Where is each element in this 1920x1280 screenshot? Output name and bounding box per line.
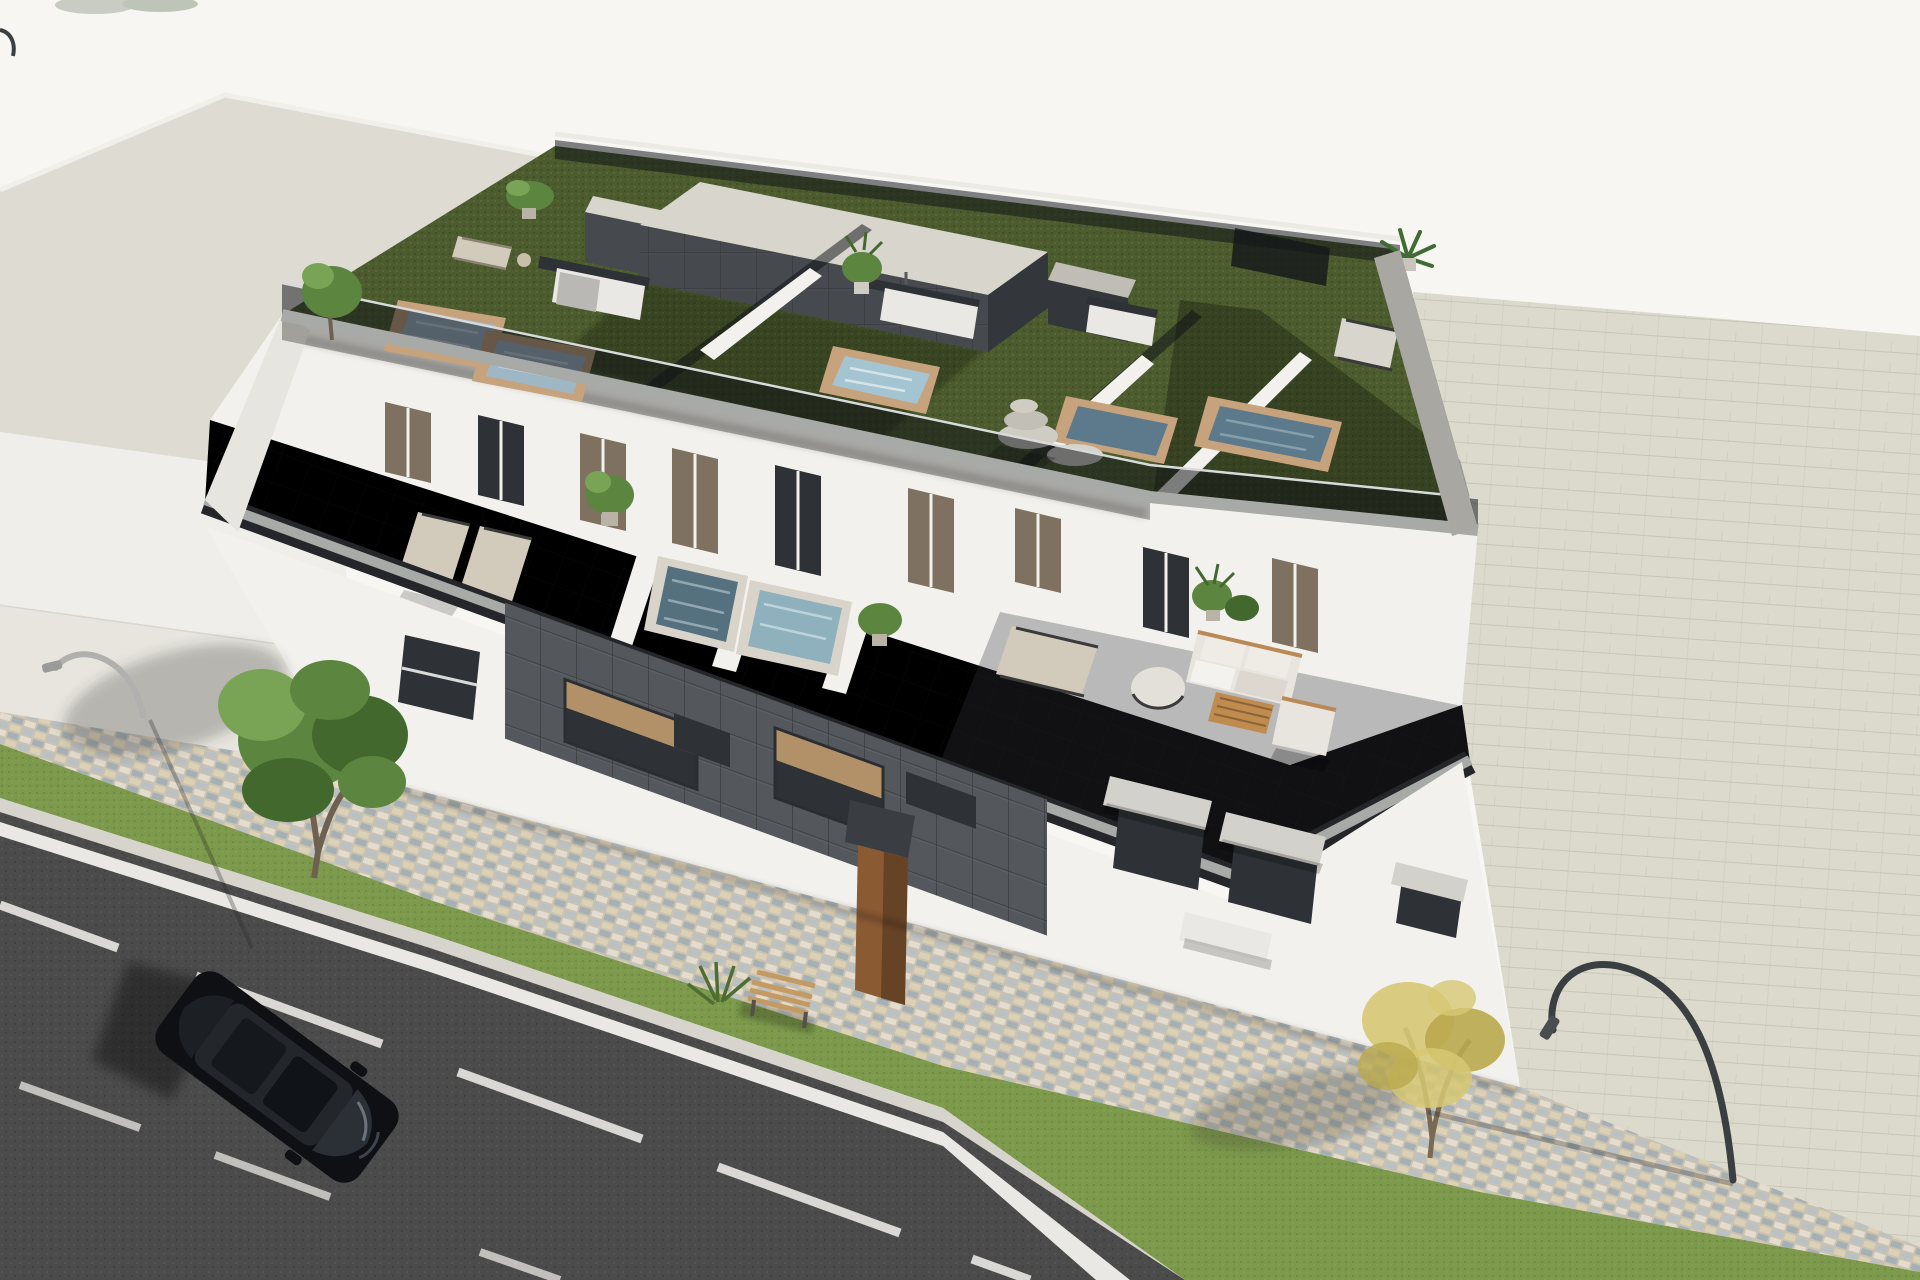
- architectural-render: [0, 0, 1920, 1280]
- armchair: [1270, 696, 1336, 772]
- round-chair: [1131, 667, 1185, 709]
- render-stage: [0, 0, 1920, 1280]
